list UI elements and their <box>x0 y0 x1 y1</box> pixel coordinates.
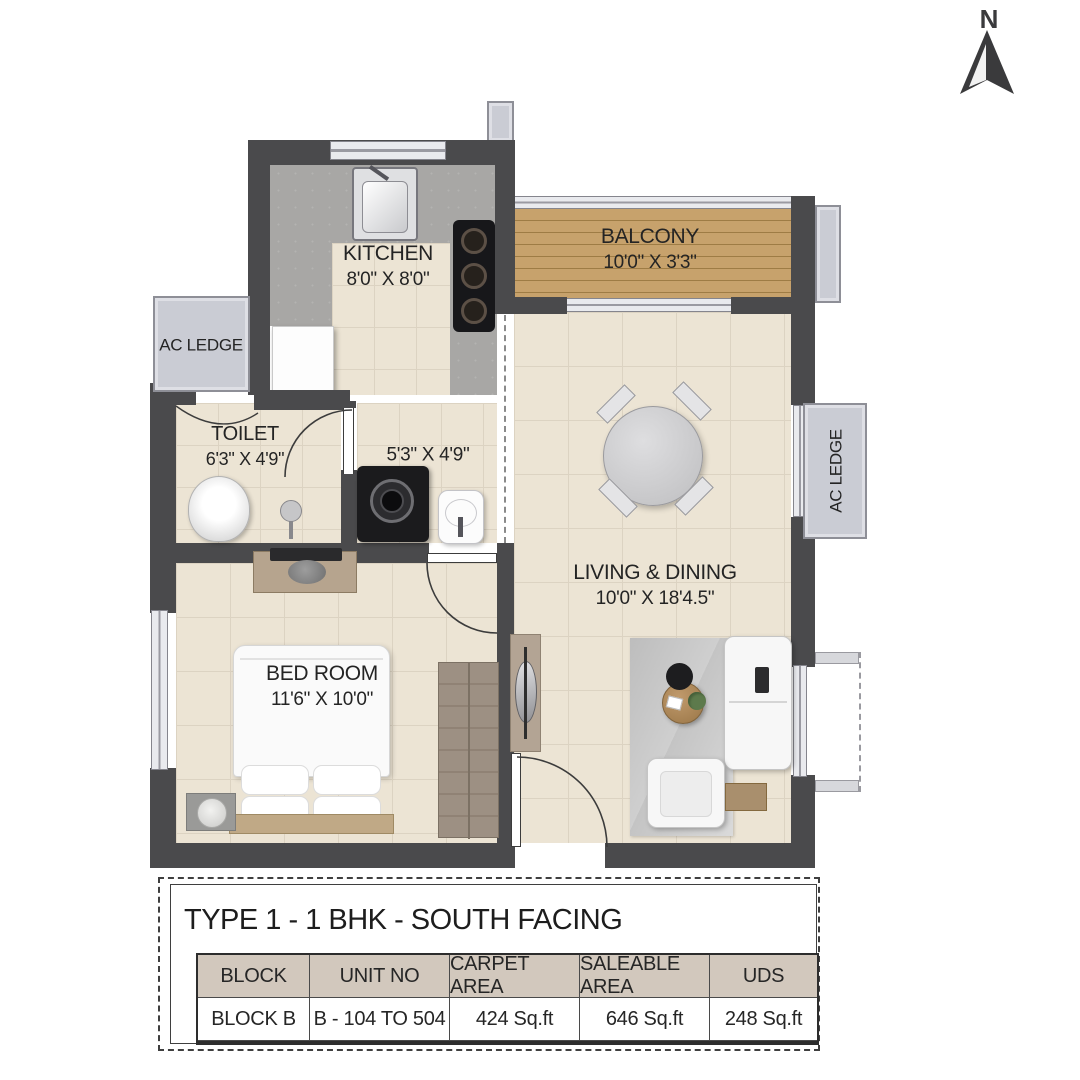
kitchen-dims: 8'0" X 8'0" <box>343 270 433 289</box>
balcony-dims: 10'0" X 3'3" <box>601 253 699 272</box>
toilet-label: TOILET 6'3" X 4'9" <box>206 424 284 468</box>
living-name: LIVING & DINING <box>573 562 737 583</box>
col-header-carpet-area: CARPET AREA <box>450 955 580 998</box>
open-plan-divider <box>504 315 506 543</box>
toilet-name: TOILET <box>206 424 284 444</box>
col-header-block: BLOCK <box>198 955 310 998</box>
cell-unit-no: B - 104 TO 504 <box>310 998 450 1041</box>
balcony-name: BALCONY <box>601 226 699 247</box>
col-header-uds: UDS <box>710 955 817 998</box>
utility-dims: 5'3" X 4'9" <box>387 446 470 465</box>
bedroom-dims: 11'6" X 10'0" <box>266 690 378 709</box>
utility-label: 5'3" X 4'9" <box>387 446 470 465</box>
cell-carpet-area: 424 Sq.ft <box>450 998 580 1041</box>
balcony-label: BALCONY 10'0" X 3'3" <box>601 226 699 272</box>
col-header-saleable-area: SALEABLE AREA <box>580 955 710 998</box>
col-header-unit-no: UNIT NO <box>310 955 450 998</box>
cell-saleable-area: 646 Sq.ft <box>580 998 710 1041</box>
bedroom-label: BED ROOM 11'6" X 10'0" <box>266 663 378 709</box>
cell-uds: 248 Sq.ft <box>710 998 817 1041</box>
living-dims: 10'0" X 18'4.5" <box>573 589 737 608</box>
kitchen-label: KITCHEN 8'0" X 8'0" <box>343 243 433 289</box>
unit-info-table: BLOCK UNIT NO CARPET AREA SALEABLE AREA … <box>196 953 819 1045</box>
kitchen-name: KITCHEN <box>343 243 433 264</box>
cell-block: BLOCK B <box>198 998 310 1041</box>
toilet-dims: 6'3" X 4'9" <box>206 450 284 468</box>
living-label: LIVING & DINING 10'0" X 18'4.5" <box>573 562 737 608</box>
bedroom-name: BED ROOM <box>266 663 378 684</box>
floor-plan-canvas: N AC <box>0 0 1080 1080</box>
unit-type-title: TYPE 1 - 1 BHK - SOUTH FACING <box>184 904 622 937</box>
